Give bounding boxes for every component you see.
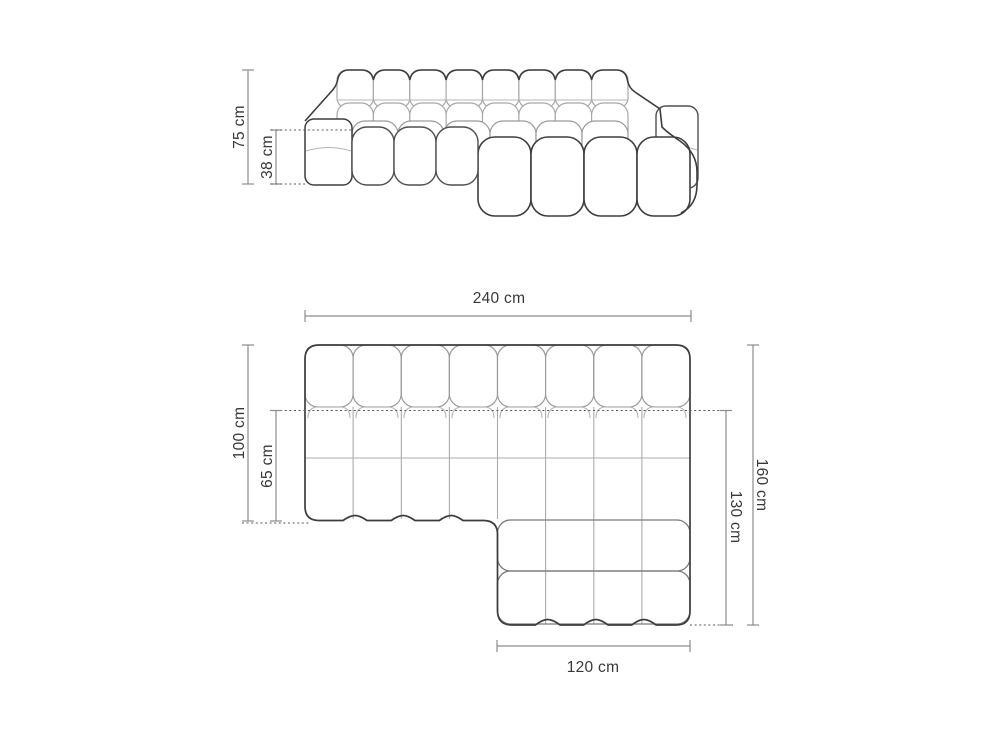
dim-label-total-depth: 160 cm <box>753 459 770 512</box>
front-seat-cushions <box>352 127 478 185</box>
plan-backrest-cushions <box>305 345 690 407</box>
dim-plan-seat-depth: 65 cm <box>259 411 282 522</box>
dim-plan-body-depth: 100 cm <box>231 345 254 521</box>
front-backrest-cushions <box>337 70 628 108</box>
dim-front-total-height: 75 cm <box>231 70 254 184</box>
dim-plan-chaise-width: 120 cm <box>497 640 690 676</box>
diagram-canvas: 75 cm 38 cm <box>0 0 1000 750</box>
dim-label-total-width: 240 cm <box>473 290 526 307</box>
dim-plan-total-width: 240 cm <box>305 290 691 322</box>
sofa-dimensions-svg: 75 cm 38 cm <box>0 0 1000 750</box>
dim-label-seat-height: 38 cm <box>259 135 276 179</box>
dim-plan-chaise-depth: 130 cm <box>720 411 744 626</box>
dim-label-total-height: 75 cm <box>231 105 248 149</box>
top-plan-view: 240 cm 100 cm 65 cm 160 cm 1 <box>231 290 770 676</box>
dim-plan-total-depth: 160 cm <box>747 345 770 625</box>
dim-label-chaise-depth: 130 cm <box>727 491 744 544</box>
dim-label-chaise-width: 120 cm <box>567 659 620 676</box>
dim-label-body-depth: 100 cm <box>231 407 248 460</box>
front-left-armrest <box>305 119 352 185</box>
plan-projection-lines <box>242 411 733 626</box>
dim-label-seat-depth: 65 cm <box>259 444 276 488</box>
front-chaise-cushions <box>478 137 690 216</box>
front-elevation-view: 75 cm 38 cm <box>231 70 698 216</box>
